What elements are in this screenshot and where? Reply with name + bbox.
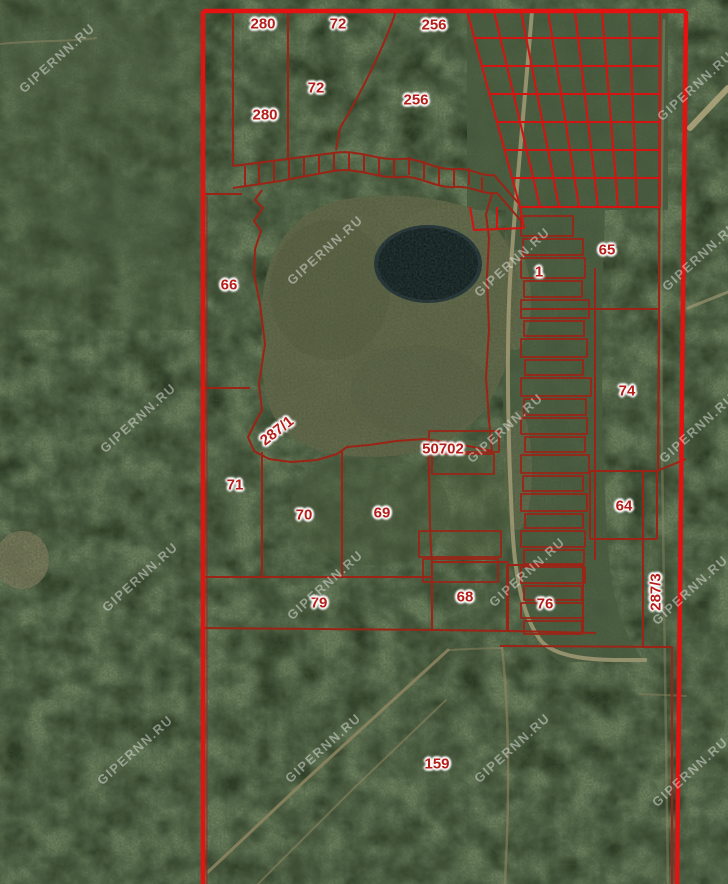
forest-speckle-texture — [0, 0, 728, 884]
map-viewport[interactable]: 28072256722802566665174287/1507027170696… — [0, 0, 728, 884]
satellite-parcel-map — [0, 0, 728, 884]
